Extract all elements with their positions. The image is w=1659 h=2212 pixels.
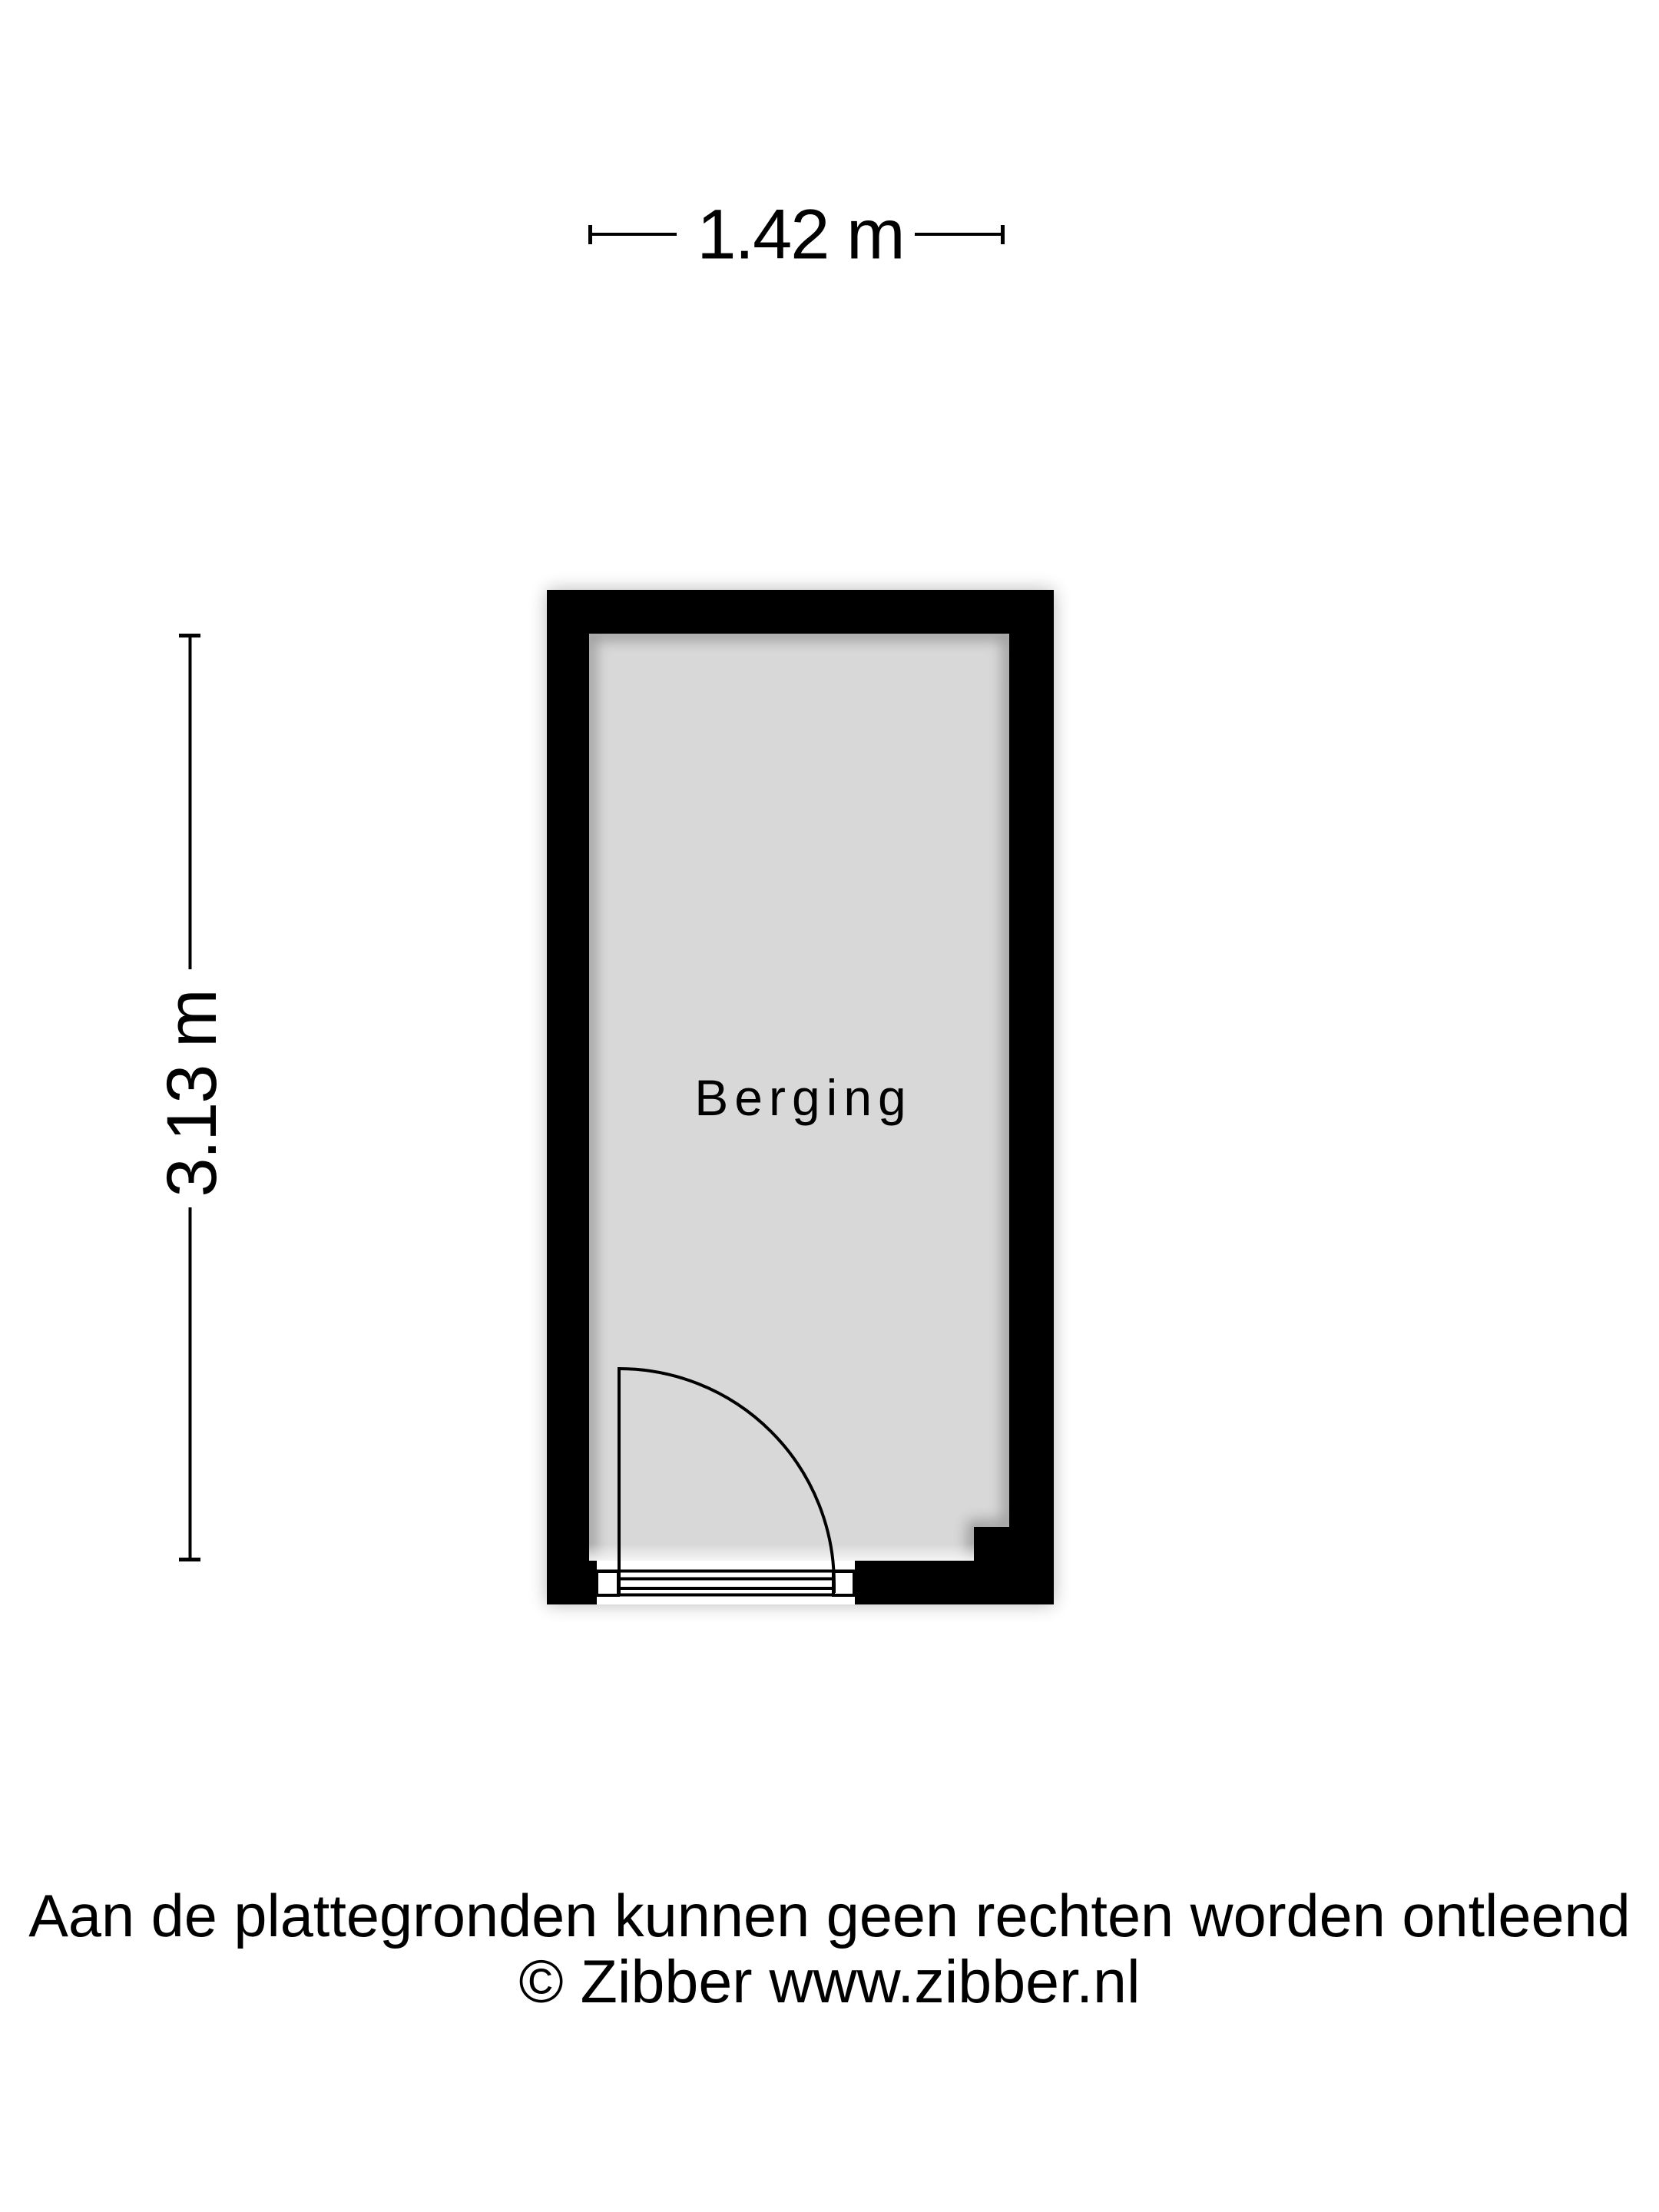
svg-text:Berging: Berging bbox=[694, 1069, 912, 1126]
svg-text:1.42 m: 1.42 m bbox=[697, 196, 903, 274]
svg-text:Aan de plattegronden kunnen ge: Aan de plattegronden kunnen geen rechten… bbox=[28, 1883, 1631, 1949]
svg-text:© Zibber www.zibber.nl: © Zibber www.zibber.nl bbox=[518, 1947, 1140, 2015]
svg-text:3.13 m: 3.13 m bbox=[153, 990, 231, 1197]
